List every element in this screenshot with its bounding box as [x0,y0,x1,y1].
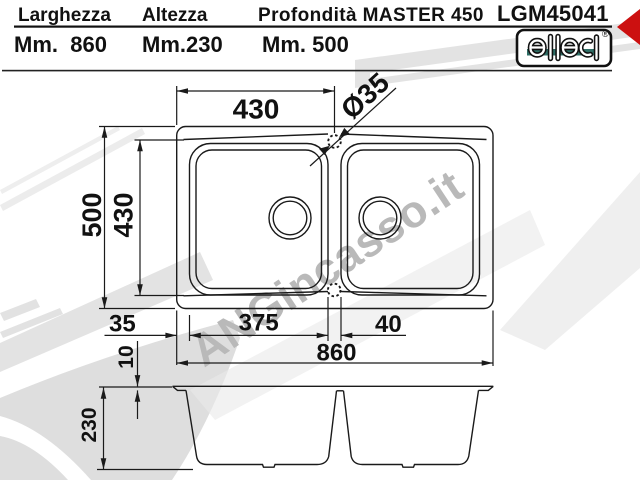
svg-text:Mm.230: Mm.230 [142,32,223,57]
svg-text:®: ® [602,29,609,39]
svg-text:500: 500 [77,192,107,237]
svg-text:430: 430 [109,192,139,237]
svg-text:860: 860 [316,340,356,367]
svg-text:375: 375 [239,310,279,337]
svg-text:Altezza: Altezza [142,5,208,26]
svg-text:Larghezza: Larghezza [18,5,111,26]
svg-text:10: 10 [115,345,138,368]
svg-text:Profondità MASTER 450: Profondità MASTER 450 [258,5,484,26]
svg-text:Mm. 860: Mm. 860 [14,32,107,57]
svg-text:230: 230 [78,407,101,442]
svg-text:Mm. 500: Mm. 500 [262,32,349,57]
svg-text:430: 430 [233,94,280,125]
svg-text:40: 40 [375,311,402,338]
svg-text:LGM45041: LGM45041 [497,1,609,26]
svg-text:35: 35 [109,311,136,338]
